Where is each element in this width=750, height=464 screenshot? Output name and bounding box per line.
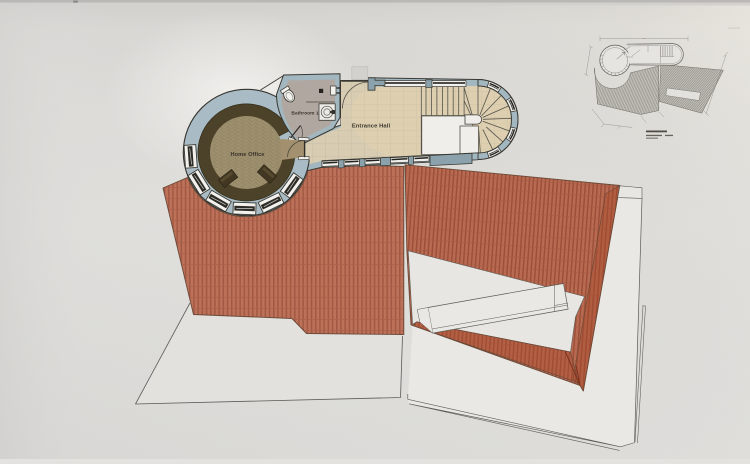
svg-text:Home Office: Home Office [230, 152, 264, 158]
svg-text:Bathroom 1: Bathroom 1 [291, 111, 318, 117]
svg-text:Entrance Hall: Entrance Hall [352, 123, 391, 129]
